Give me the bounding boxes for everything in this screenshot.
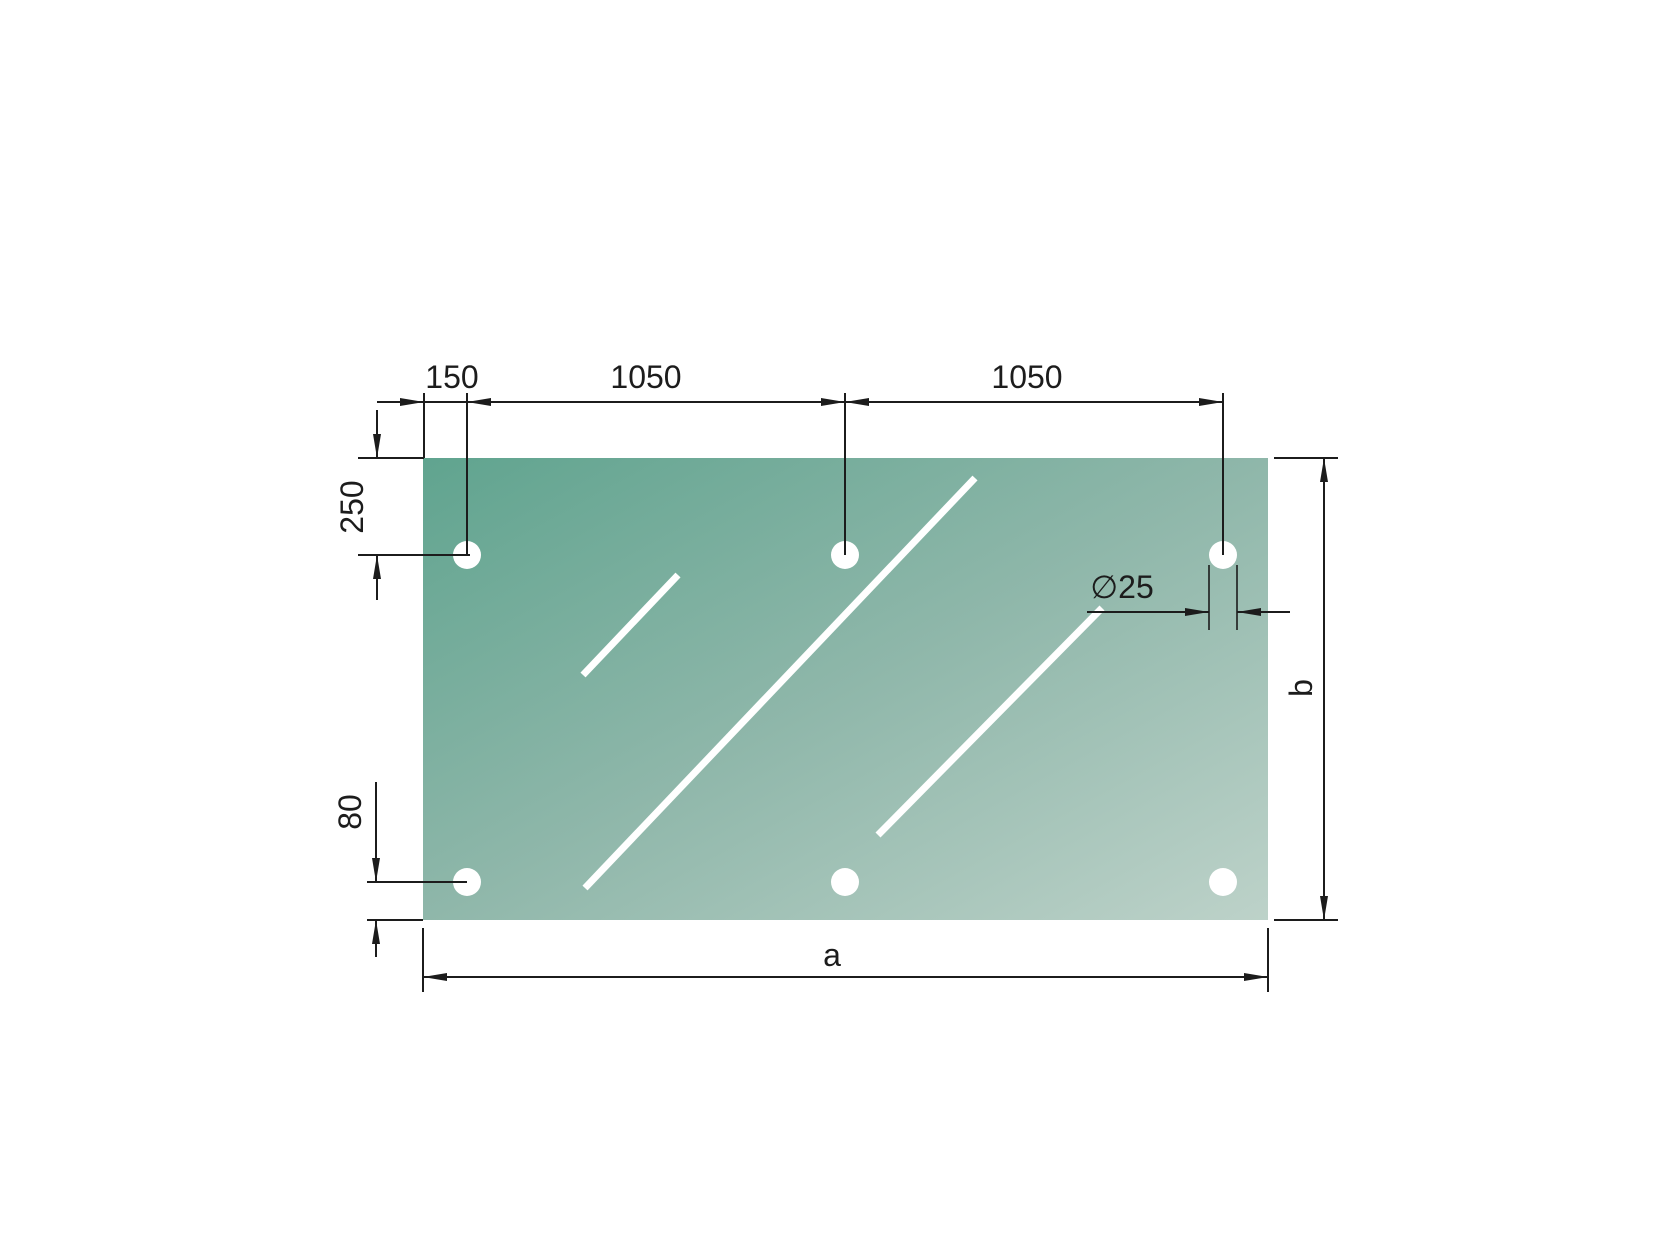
dim-label-250: 250 xyxy=(334,480,370,533)
arrowhead xyxy=(373,434,381,458)
dimension-a: a xyxy=(423,928,1268,992)
dim-label-80: 80 xyxy=(332,794,368,830)
drawing-canvas: 150 1050 1050 250 80 ∅25 xyxy=(0,0,1680,1260)
dim-label-1050-second: 1050 xyxy=(991,359,1062,395)
hole-bottom-middle xyxy=(831,868,859,896)
dim-label-a: a xyxy=(823,937,841,973)
arrowhead xyxy=(467,398,491,406)
arrowhead xyxy=(845,398,869,406)
dim-label-1050-first: 1050 xyxy=(610,359,681,395)
technical-drawing: 150 1050 1050 250 80 ∅25 xyxy=(0,0,1680,1260)
arrowhead xyxy=(1320,458,1328,482)
arrowhead xyxy=(821,398,845,406)
arrowhead xyxy=(423,973,447,981)
arrowhead xyxy=(372,920,380,944)
arrowhead xyxy=(372,858,380,882)
arrowhead xyxy=(1320,896,1328,920)
arrowhead xyxy=(373,555,381,579)
arrowhead xyxy=(1244,973,1268,981)
arrowhead xyxy=(400,398,424,406)
dim-label-b: b xyxy=(1283,679,1319,697)
dimension-b: b xyxy=(1274,458,1338,920)
dim-label-150: 150 xyxy=(425,359,478,395)
dim-label-diameter: ∅25 xyxy=(1090,569,1153,605)
hole-bottom-right xyxy=(1209,868,1237,896)
arrowhead xyxy=(1199,398,1223,406)
